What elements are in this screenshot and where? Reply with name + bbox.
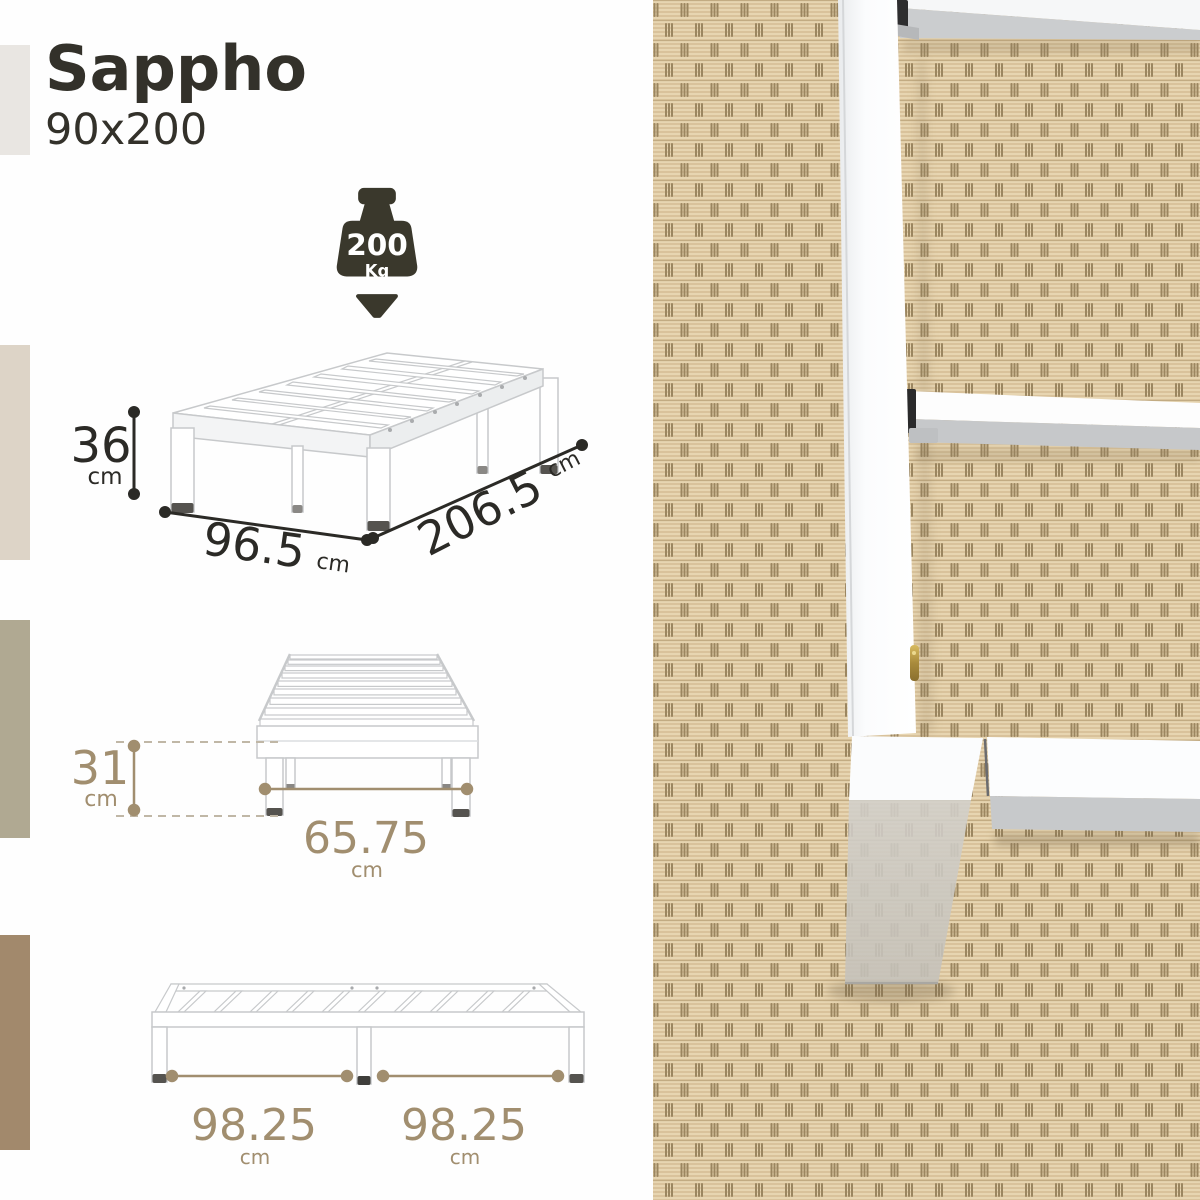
brass-screw bbox=[910, 645, 919, 681]
product-photo bbox=[653, 0, 1200, 1200]
bed-slats bbox=[178, 991, 530, 1012]
dim-length-label: 206.5 cm bbox=[409, 437, 593, 567]
dim-clearance-label: 31 cm bbox=[71, 741, 130, 812]
dim-span-label: 65.75 cm bbox=[303, 813, 429, 882]
bed-leg bbox=[266, 758, 470, 817]
width-unit: cm bbox=[315, 549, 352, 578]
front-view-diagram bbox=[152, 984, 584, 1085]
bed-end-post bbox=[155, 984, 179, 1012]
bed-near-rail bbox=[152, 1012, 584, 1027]
right-span-unit: cm bbox=[450, 1145, 480, 1169]
bed-far-rail bbox=[171, 984, 547, 991]
span-value: 65.75 bbox=[303, 813, 429, 864]
width-value: 96.5 bbox=[200, 511, 309, 579]
clearance-unit: cm bbox=[84, 787, 118, 812]
product-infographic: Sappho 90x200 200 Kg bbox=[0, 0, 1200, 1200]
dim-height-label: 36 cm bbox=[70, 418, 131, 490]
dim-width-label: 96.5 cm bbox=[200, 511, 355, 585]
bed-end-post bbox=[539, 984, 581, 1012]
height-unit: cm bbox=[87, 464, 122, 490]
dim-right-span-label: 98.25 cm bbox=[401, 1100, 527, 1169]
side-view-diagram bbox=[257, 654, 478, 817]
dim-left-span-label: 98.25 cm bbox=[191, 1100, 317, 1169]
bed-slats bbox=[260, 655, 473, 727]
bed-bottom-rail bbox=[985, 737, 1200, 832]
bed-front-rail bbox=[257, 726, 478, 758]
right-span-value: 98.25 bbox=[401, 1100, 527, 1151]
left-span-value: 98.25 bbox=[191, 1100, 317, 1151]
length-value: 206.5 bbox=[409, 459, 551, 567]
left-span-unit: cm bbox=[240, 1145, 270, 1169]
span-unit: cm bbox=[351, 858, 383, 882]
dimension-diagrams: 36 cm 96.5 cm 206.5 cm bbox=[0, 0, 655, 1200]
bed-slat-top bbox=[893, 0, 1200, 40]
slat-bracket bbox=[909, 428, 938, 443]
